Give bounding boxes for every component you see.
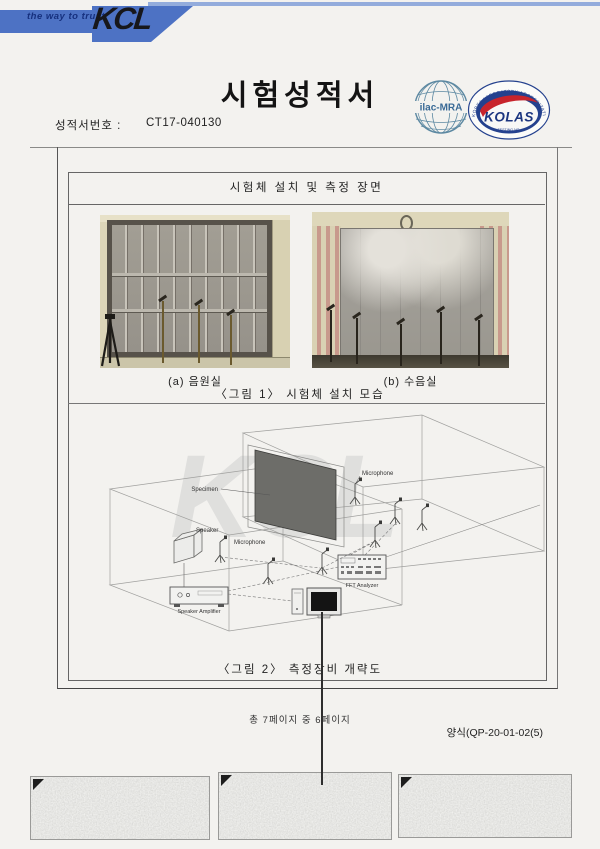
mic-stand — [330, 310, 332, 362]
stud-rail — [112, 273, 267, 277]
kolas-logo: KOREA LABORATORY ACCREDITATION SCHEME KO… — [467, 80, 551, 141]
photo-a-stud-wall — [112, 225, 267, 352]
mic-stand — [356, 318, 358, 364]
fft-analyzer — [338, 555, 386, 579]
scan-fold-line — [321, 612, 323, 785]
mic-stand — [478, 320, 480, 366]
figure2-caption: 〈그림 2〉 측정장비 개략도 — [0, 661, 600, 677]
report-number-label: 성적서번호 : — [55, 117, 121, 133]
mic-stand — [400, 324, 402, 366]
page-info: 총 7페이지 중 6페이지 — [0, 712, 600, 726]
security-strip-2 — [218, 772, 392, 840]
ilac-label: ilac-MRA — [420, 103, 463, 114]
photo-a-floor — [100, 357, 290, 368]
photo-a-wall-frame — [107, 220, 272, 357]
photo-source-room — [100, 215, 290, 368]
photo-a-right-wall — [272, 220, 290, 357]
mic-stand — [198, 305, 200, 363]
mic-stand — [162, 301, 164, 363]
computer — [292, 588, 341, 618]
kolas-sub-text: TESTING NO. — [498, 128, 521, 132]
camera-tripod — [100, 313, 125, 368]
scanned-test-report-page: { "header": { "tagline": "the way to tru… — [0, 0, 600, 849]
form-number: 양식(QP-20-01-02(5) — [447, 725, 543, 740]
photo-b-left-wall — [312, 226, 341, 356]
microphone-label-left: Microphone — [234, 540, 266, 546]
section-divider — [68, 403, 545, 404]
kolas-label: KOLAS — [484, 110, 534, 125]
corner-mark — [401, 777, 412, 788]
speaker-label: Speaker — [196, 528, 218, 534]
photo-b-test-panel — [340, 228, 494, 357]
kcl-logo: KCL — [91, 1, 153, 37]
amplifier — [170, 587, 228, 607]
microphone-label-right: Microphone — [362, 471, 394, 477]
security-strip-3 — [398, 774, 572, 838]
corner-mark — [33, 779, 44, 790]
figure-box-header: 시험체 설치 및 측정 장면 — [68, 172, 545, 205]
amplifier-label: Speaker Amplifier — [177, 609, 220, 615]
security-strip-1 — [30, 776, 210, 840]
report-number-value: CT17-040130 — [146, 117, 222, 129]
specimen-label: Specimen — [191, 487, 218, 493]
corner-mark — [221, 775, 232, 786]
measurement-diagram: KCL Specimen — [70, 405, 546, 657]
mic-stand — [230, 315, 232, 365]
figure1-caption: 〈그림 1〉 시험체 설치 모습 — [0, 386, 600, 402]
cable-to-room — [386, 505, 540, 557]
photo-receiving-room — [312, 212, 509, 368]
ilac-mra-logo: ilac-MRA — [413, 79, 469, 135]
stud-rail — [112, 309, 267, 313]
fft-analyzer-label: FFT Analyzer — [346, 583, 379, 589]
mic-stand — [440, 312, 442, 364]
